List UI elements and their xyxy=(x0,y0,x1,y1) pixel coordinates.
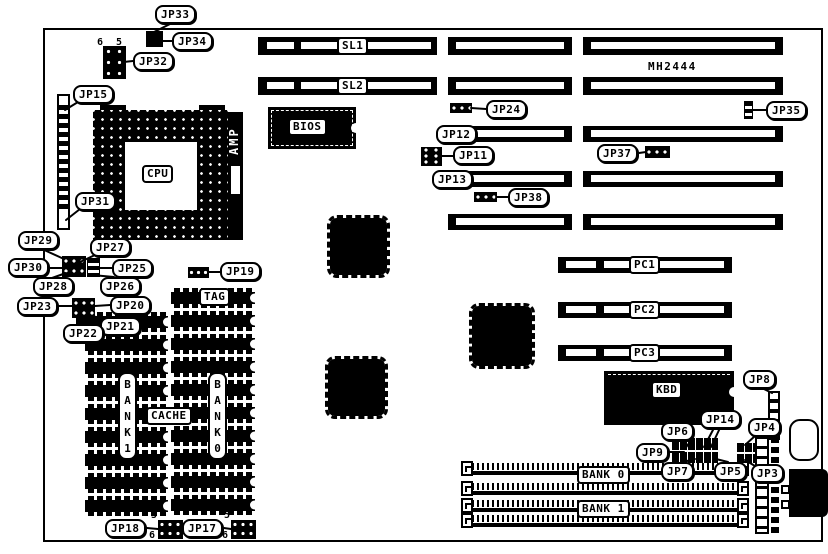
jumper-label-jp14: JP14 xyxy=(700,410,741,429)
jp37-header xyxy=(645,146,670,158)
jumper-label-jp25: JP25 xyxy=(112,259,153,278)
jumper-label-jp7: JP7 xyxy=(661,462,694,481)
kbd-chip-notch xyxy=(729,387,734,397)
jumper-label-jp32: JP32 xyxy=(133,52,174,71)
qfp-chip-3 xyxy=(469,303,535,369)
battery-outline xyxy=(789,419,819,461)
slot-isa5-c xyxy=(583,214,783,230)
qfp-chip-2 xyxy=(325,356,388,419)
jp38-header xyxy=(474,192,497,202)
slot-inner xyxy=(566,349,596,356)
jumper-label-jp28: JP28 xyxy=(33,277,74,296)
simm-latch-right-1 xyxy=(737,481,749,496)
simm-latch-right-2 xyxy=(737,498,749,513)
slot-sl2-c xyxy=(583,77,783,95)
cache-chip-col0-7 xyxy=(85,473,168,493)
jumper-label-jp24: JP24 xyxy=(486,100,527,119)
simm-socket-1 xyxy=(467,483,744,495)
slot-label-pc1: PC1 xyxy=(629,256,660,274)
cache-chip-col1-1 xyxy=(171,311,255,331)
simm-latch-left-2 xyxy=(461,498,473,513)
jp15-socket-strip xyxy=(57,94,70,230)
jumper-label-jp33: JP33 xyxy=(155,5,196,24)
cpu-label: CPU xyxy=(142,165,173,183)
kbd-label: KBD xyxy=(651,381,682,399)
jumper-label-jp23: JP23 xyxy=(17,297,58,316)
power-pin-column xyxy=(755,437,769,534)
simm-bank1-label: BANK 1 xyxy=(577,500,630,518)
slot-inner xyxy=(591,42,775,49)
slot-inner xyxy=(566,306,596,313)
jumper-label-jp20: JP20 xyxy=(110,296,151,315)
motherboard-diagram: CPU AMP BIOS KBD TAG CACHE B A N K 1 B A… xyxy=(0,0,828,554)
jumper-label-jp15: JP15 xyxy=(73,85,114,104)
jumper-label-jp30: JP30 xyxy=(8,258,49,277)
cache-label: CACHE xyxy=(146,407,192,425)
slot-inner xyxy=(456,218,564,225)
slot-inner xyxy=(267,42,294,49)
jumper-label-jp38: JP38 xyxy=(508,188,549,207)
slot-inner xyxy=(566,261,596,268)
simm-latch-left-1 xyxy=(461,481,473,496)
jp19-header xyxy=(188,267,209,278)
jp17-header xyxy=(231,520,256,539)
pin-number-2: 5 xyxy=(151,511,157,521)
jumper-label-jp3: JP3 xyxy=(751,464,784,483)
jp6-header xyxy=(672,438,718,463)
slot-isa5-b xyxy=(448,214,572,230)
jp5-header xyxy=(737,443,755,463)
jumper-label-jp29: JP29 xyxy=(18,231,59,250)
slot-sl1-b xyxy=(448,37,572,55)
din-pad-2 xyxy=(781,500,790,509)
slot-inner xyxy=(591,130,775,137)
din-keyboard-connector xyxy=(789,469,828,517)
slot-inner xyxy=(604,306,724,313)
pin-number-3: 6 xyxy=(149,531,155,541)
jumper-label-jp37: JP37 xyxy=(597,144,638,163)
jumper-label-jp13: JP13 xyxy=(432,170,473,189)
jumper-label-jp18: JP18 xyxy=(105,519,146,538)
jp35-header xyxy=(744,101,753,119)
slot-inner xyxy=(591,175,775,182)
cache-chip-col1-2 xyxy=(171,334,255,354)
jp20-header xyxy=(72,298,95,318)
pin-number-1: 5 xyxy=(116,38,122,48)
din-pad-1 xyxy=(781,485,790,494)
slot-inner xyxy=(604,261,724,268)
jumper-label-jp31: JP31 xyxy=(75,192,116,211)
pin-number-0: 6 xyxy=(97,38,103,48)
jumper-label-jp8: JP8 xyxy=(743,370,776,389)
tag-label: TAG xyxy=(199,288,230,306)
amp-connector-window xyxy=(231,160,240,194)
simm-bank0-label: BANK 0 xyxy=(577,466,630,484)
jumper-label-jp17: JP17 xyxy=(182,519,223,538)
jp32-header xyxy=(103,46,126,79)
board-model-text: MH2444 xyxy=(648,60,697,73)
simm-latch-right-3 xyxy=(737,513,749,528)
cache-chip-col1-9 xyxy=(171,495,255,515)
simm-latch-left-3 xyxy=(461,513,473,528)
slot-inner xyxy=(604,349,724,356)
slot-label-sl1: SL1 xyxy=(337,37,368,55)
slot-isa3-c xyxy=(583,126,783,142)
jumper-label-jp27: JP27 xyxy=(90,238,131,257)
power-strip xyxy=(771,437,779,534)
jp33-header xyxy=(146,31,163,47)
slot-inner xyxy=(267,82,294,89)
bank1-chip-label: B A N K 1 xyxy=(118,372,137,460)
jp25-header xyxy=(87,258,100,277)
jumper-label-jp11: JP11 xyxy=(453,146,494,165)
kbd-chip-outline xyxy=(608,374,730,375)
jumper-label-jp19: JP19 xyxy=(220,262,261,281)
jumper-label-jp34: JP34 xyxy=(172,32,213,51)
slot-inner xyxy=(591,218,775,225)
cache-chip-col1-8 xyxy=(171,472,255,492)
bios-label: BIOS xyxy=(288,118,327,136)
jp11-header xyxy=(421,147,442,166)
jumper-label-jp4: JP4 xyxy=(748,418,781,437)
jumper-label-jp26: JP26 xyxy=(100,277,141,296)
bank0-chip-label: B A N K 0 xyxy=(208,372,227,460)
jumper-label-jp12: JP12 xyxy=(436,125,477,144)
jumper-label-jp5: JP5 xyxy=(714,462,747,481)
slot-sl2-b xyxy=(448,77,572,95)
jumper-label-jp35: JP35 xyxy=(766,101,807,120)
jp24-header xyxy=(450,103,472,113)
slot-inner xyxy=(591,82,775,89)
jumper-label-jp9: JP9 xyxy=(636,443,669,462)
slot-label-pc2: PC2 xyxy=(629,301,660,319)
pin-number-5: 6 xyxy=(222,531,228,541)
jp18-header xyxy=(158,520,183,539)
jumper-label-jp21: JP21 xyxy=(100,317,141,336)
slot-label-pc3: PC3 xyxy=(629,344,660,362)
slot-inner xyxy=(456,82,564,89)
simm-latch-left-0 xyxy=(461,461,473,476)
slot-sl1-c xyxy=(583,37,783,55)
slot-isa4-c xyxy=(583,171,783,187)
jumper-label-jp6: JP6 xyxy=(661,422,694,441)
qfp-chip-1 xyxy=(327,215,390,278)
jp27-header xyxy=(62,256,86,277)
pin-number-4: 5 xyxy=(224,511,230,521)
bios-chip-notch xyxy=(351,123,356,133)
jumper-label-jp22: JP22 xyxy=(63,324,104,343)
slot-inner xyxy=(456,42,564,49)
slot-label-sl2: SL2 xyxy=(337,77,368,95)
